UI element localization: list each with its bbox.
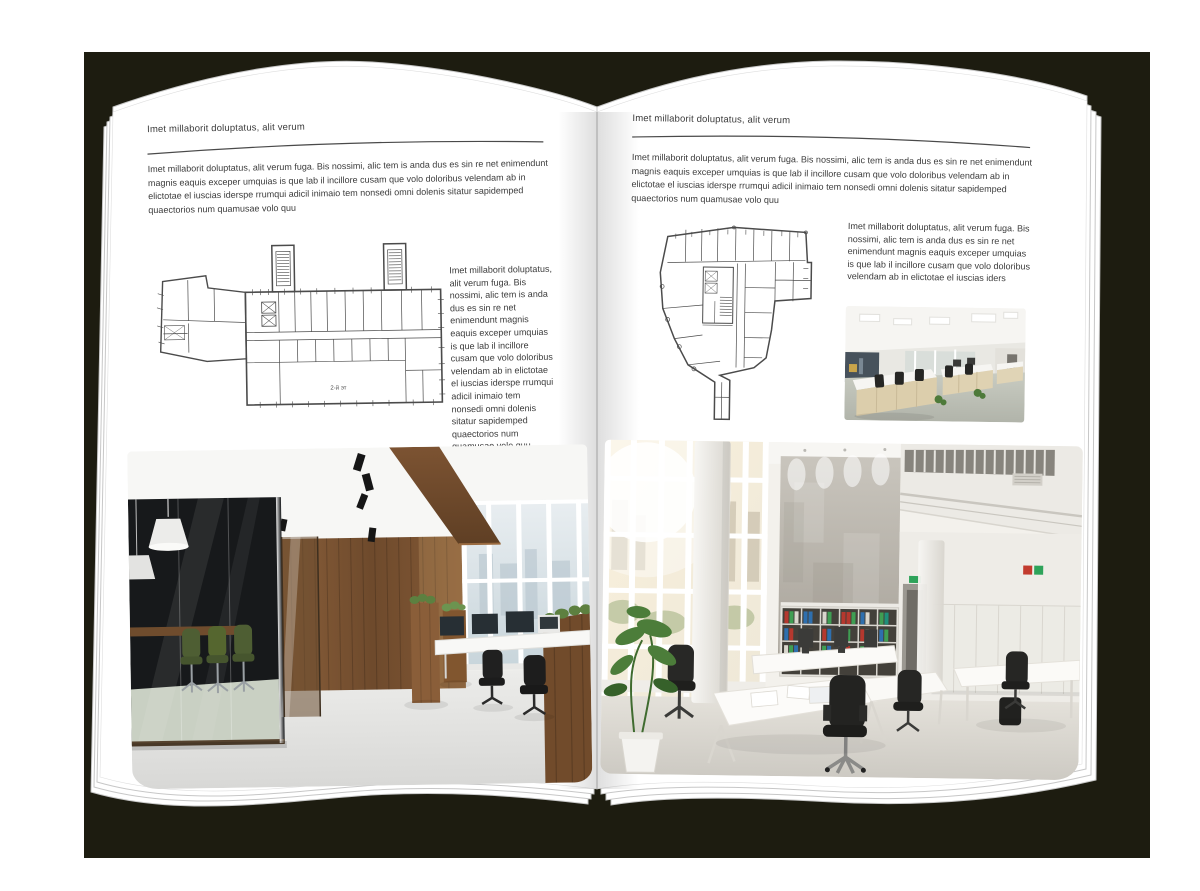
left-page-header: Imet millaborit doluptatus, alit verum — [147, 119, 447, 135]
right-page-header: Imet millaborit doluptatus, alit verum — [632, 113, 932, 128]
left-page-content: Imet millaborit doluptatus, alit verum I… — [94, 64, 603, 814]
photo-office-atrium — [600, 440, 1083, 781]
green-chairs — [180, 625, 255, 694]
floor-plan-right — [643, 215, 844, 426]
right-page-content: Imet millaborit doluptatus, alit verum I… — [592, 65, 1099, 814]
right-page-intro: Imet millaborit doluptatus, alit verum f… — [631, 151, 1038, 211]
floor-plan-left-label: 2-й эт — [330, 384, 346, 391]
photo-office-small — [844, 306, 1026, 423]
left-page-intro: Imet millaborit doluptatus, alit verum f… — [148, 157, 553, 217]
floor-plan-left: 2-й эт — [147, 228, 452, 433]
left-header-rule — [145, 135, 545, 157]
left-page-side-text: Imet millaborit doluptatus, alit verum f… — [449, 263, 555, 454]
right-header-rule — [630, 129, 1034, 153]
photo-office-loft — [127, 444, 592, 789]
magazine-mockup-stage: Imet millaborit doluptatus, alit verum I… — [0, 0, 1200, 891]
right-page-side-text: Imet millaborit doluptatus, alit verum f… — [847, 220, 1032, 286]
